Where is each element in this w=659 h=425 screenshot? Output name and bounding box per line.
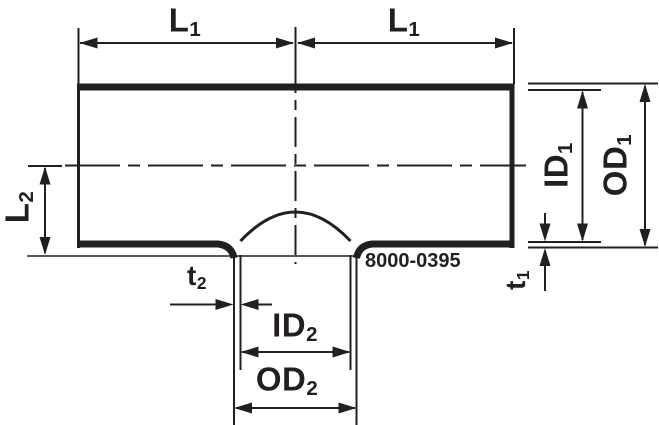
- dim-label-id2: ID2: [272, 309, 318, 342]
- dim-label-l1-left: L1: [169, 4, 202, 37]
- dim-label-l2: L2: [1, 191, 34, 224]
- centerlines: [65, 63, 526, 264]
- technical-drawing: L1 L1 L2 ID1 OD1 t1 t2 ID2 OD2 8000-0395: [0, 0, 659, 425]
- dim-label-id1: ID1: [540, 142, 573, 188]
- part-number: 8000-0395: [365, 251, 461, 271]
- dim-label-l1-right: L1: [388, 4, 421, 37]
- dimension-arrowheads: [40, 38, 651, 414]
- dim-label-t2: t2: [187, 262, 207, 290]
- dim-label-od2: OD2: [256, 363, 318, 396]
- tee-diagram-linework: [0, 0, 659, 425]
- dim-label-t1: t1: [502, 270, 530, 290]
- dim-label-od1: OD1: [599, 134, 632, 196]
- extension-lines: [28, 27, 658, 248]
